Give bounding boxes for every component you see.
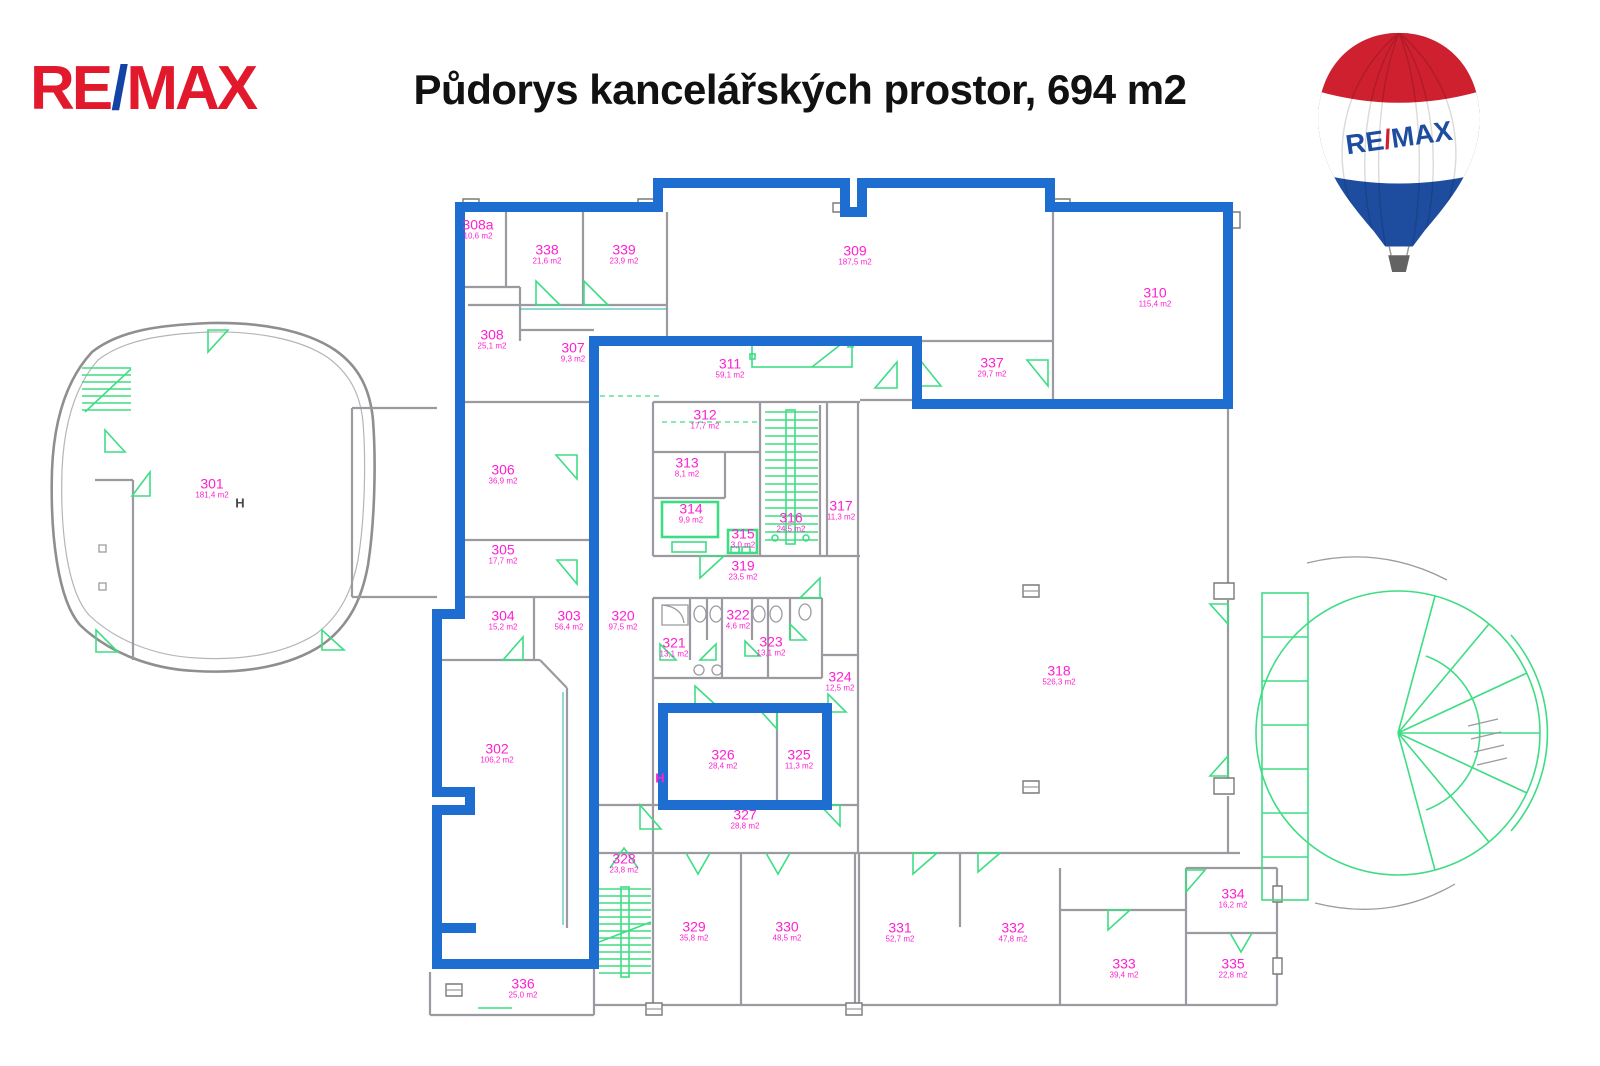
room-label-332: 33247,8 m2 [999, 920, 1028, 943]
room-label-316: 31624,5 m2 [777, 510, 806, 533]
room-label-311: 31159,1 m2 [716, 356, 745, 379]
room-label-307: 3079,3 m2 [561, 340, 585, 363]
marker-H-dark: H [235, 496, 244, 511]
room-label-324: 32412,5 m2 [826, 669, 855, 692]
room-label-323: 32313,1 m2 [757, 634, 786, 657]
room-label-302: 302106,2 m2 [480, 741, 513, 764]
floor-plan-page: RE/MAX Půdorys kancelářských prostor, 69… [0, 0, 1600, 1066]
room-label-337: 33729,7 m2 [978, 355, 1007, 378]
room-label-330: 33048,5 m2 [773, 919, 802, 942]
room-label-314: 3149,9 m2 [679, 501, 703, 524]
room-label-320: 32097,5 m2 [609, 608, 638, 631]
room-label-309: 309187,5 m2 [838, 243, 871, 266]
room-label-338: 33821,6 m2 [533, 242, 562, 265]
room-label-336: 33625,0 m2 [509, 976, 538, 999]
room-label-317: 31711,3 m2 [827, 498, 855, 521]
room-label-310: 310115,4 m2 [1139, 285, 1172, 308]
room-label-321: 32113,1 m2 [660, 635, 689, 658]
room-label-335: 33522,8 m2 [1219, 956, 1248, 979]
room-label-331: 33152,7 m2 [886, 920, 915, 943]
room-label-327: 32728,8 m2 [731, 807, 760, 830]
room-label-328: 32823,8 m2 [610, 851, 639, 874]
room-label-308a: 308a10,6 m2 [462, 217, 493, 240]
room-label-334: 33416,2 m2 [1219, 886, 1248, 909]
room-label-303: 30356,4 m2 [555, 608, 584, 631]
marker-H-magenta: H [655, 771, 664, 786]
room-label-326: 32628,4 m2 [709, 747, 738, 770]
room-label-333: 33339,4 m2 [1110, 956, 1139, 979]
room-label-308: 30825,1 m2 [478, 327, 507, 350]
room-label-304: 30415,2 m2 [489, 608, 518, 631]
room-label-319: 31923,5 m2 [729, 558, 758, 581]
room-label-313: 3138,1 m2 [675, 455, 699, 478]
room-labels: 301181,4 m2302106,2 m230356,4 m230415,2 … [0, 0, 1600, 1066]
room-label-306: 30636,9 m2 [489, 462, 518, 485]
room-label-325: 32511,3 m2 [785, 747, 813, 770]
room-label-305: 30517,7 m2 [489, 542, 518, 565]
room-label-322: 3224,6 m2 [726, 607, 750, 630]
room-label-315: 3153,0 m2 [731, 526, 755, 549]
room-label-339: 33923,9 m2 [610, 242, 639, 265]
room-label-329: 32935,8 m2 [680, 919, 709, 942]
room-label-301: 301181,4 m2 [195, 476, 228, 499]
room-label-318: 318526,3 m2 [1042, 663, 1075, 686]
room-label-312: 31217,7 m2 [691, 407, 720, 430]
